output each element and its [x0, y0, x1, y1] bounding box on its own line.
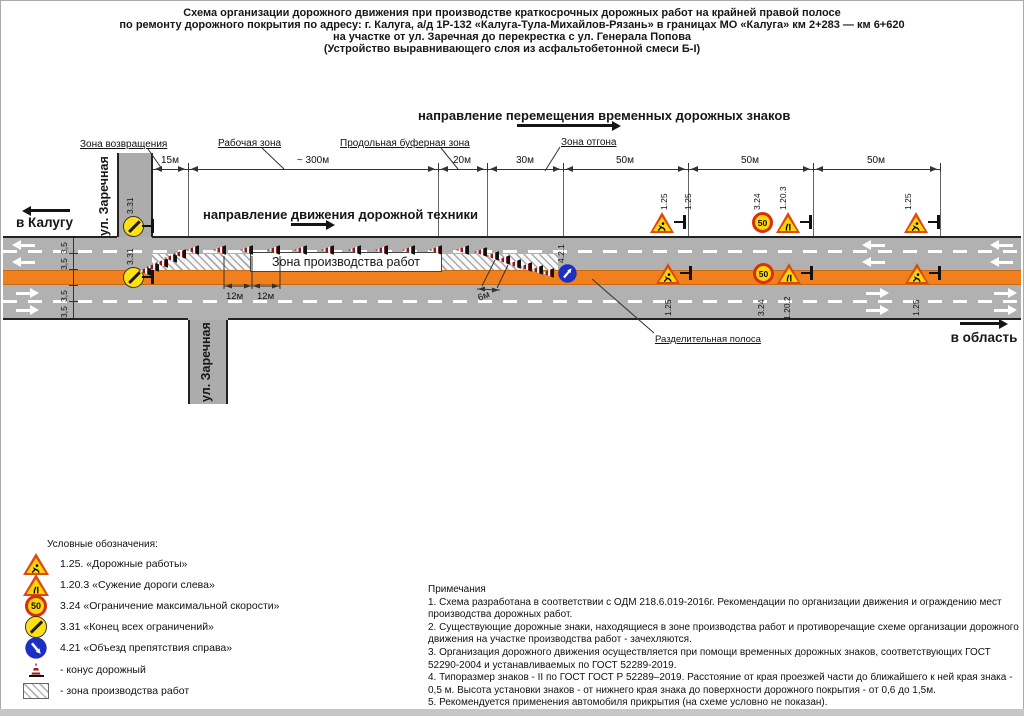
note-item: 2. Существующие дорожные знаки, находящи…: [428, 622, 1022, 647]
end-restrictions-sign-icon: [123, 216, 144, 237]
lane-direction-arrow-icon: [16, 309, 35, 312]
lane-direction-arrow-icon: [994, 309, 1013, 312]
end-restrictions-sign-icon: [20, 616, 52, 638]
to-oblast-arrow-icon: [960, 322, 1004, 325]
lane-direction-arrow-icon: [994, 261, 1013, 264]
road-edge: [3, 318, 188, 320]
buffer-zone-label: Продольная буферная зона: [340, 138, 470, 149]
legend-item: - зона производства работ: [20, 681, 189, 701]
legend-item-label: - зона производства работ: [60, 685, 189, 697]
work-zone-hatch-icon: [20, 683, 52, 699]
legend-item-label: 3.31 «Конец всех ограничений»: [60, 621, 214, 633]
sign-code-label: 3.24: [752, 184, 762, 210]
guide-line: [940, 172, 941, 237]
to-kaluga-label: в Калугу: [16, 215, 73, 230]
street-bottom-label: ул. Заречная: [199, 326, 213, 402]
sign-post-icon: [929, 266, 941, 280]
screenshot-bottom-edge: [0, 709, 1024, 716]
return-zone-label: Зона возвращения: [80, 139, 167, 150]
dim-label: 50м: [867, 155, 885, 166]
taper-zone-label: Зона отгона: [561, 137, 616, 148]
page-title-line2: по ремонту дорожного покрытия по адресу:…: [0, 19, 1024, 31]
lane-divider-dashed: [3, 250, 1021, 253]
sign-code-label: 3.31: [125, 190, 135, 214]
notes-header: Примечания: [428, 584, 1022, 597]
guide-line: [438, 172, 439, 237]
lane-dim-tick: [69, 253, 78, 254]
sign-code-label: 1.25: [659, 184, 669, 210]
detour-right-sign-icon: [20, 637, 52, 659]
to-kaluga-arrow-icon: [26, 209, 70, 212]
cone-spacing-label: 12м: [257, 291, 274, 302]
road-edge: [228, 318, 1021, 320]
detour-right-sign-icon: [558, 264, 577, 283]
cone-spacing-label: 12м: [226, 291, 243, 302]
legend-item: 50 3.24 «Ограничение максимальной скорос…: [20, 596, 279, 616]
lane-direction-arrow-icon: [866, 261, 885, 264]
sign-post-icon: [680, 266, 692, 280]
lane-dim-tick: [69, 285, 78, 286]
to-oblast-label: в область: [948, 330, 1020, 345]
note-item: 4. Типоразмер знаков - II по ГОСТ ГОСТ Р…: [428, 672, 1022, 697]
sign-code-label: 1.20.2: [782, 290, 792, 320]
dim-label: ~ 300м: [297, 155, 329, 166]
dim-segment: [152, 169, 188, 170]
legend-item: 1.25. «Дорожные работы»: [20, 554, 187, 574]
speed-limit-sign-icon: 50: [752, 212, 773, 233]
sign-code-label: 1.25: [903, 184, 913, 210]
dim-segment: [688, 169, 813, 170]
sign-post-icon: [674, 215, 686, 229]
dim-label: 15м: [161, 155, 179, 166]
sign-post-icon: [928, 215, 940, 229]
page-title-line3: на участке от ул. Заречная до перекрестк…: [0, 31, 1024, 43]
legend-item-label: - конус дорожный: [60, 664, 146, 676]
page-title-line4: (Устройство выравнивающего слоя из асфал…: [0, 43, 1024, 55]
road-edge: [3, 236, 117, 238]
sign-code-label: 3.31: [125, 241, 135, 265]
traffic-cone-icon: [20, 663, 52, 678]
machinery-direction-arrow-icon: [291, 223, 331, 226]
dim-segment: [188, 169, 438, 170]
traffic-scheme-sheet: Схема организации дорожного движения при…: [0, 0, 1024, 716]
lane-direction-arrow-icon: [994, 244, 1013, 247]
lane-direction-arrow-icon: [866, 244, 885, 247]
sign-code-label: 1.25: [663, 290, 673, 316]
lane-width-label: 3,5: [59, 304, 69, 318]
sign-code-label: 1.25: [911, 290, 921, 316]
notes-block: Примечания 1. Схема разработана в соотве…: [428, 584, 1022, 716]
sign-code-label: 4.2.1: [556, 238, 566, 263]
speed-limit-sign-icon: 50: [753, 263, 774, 284]
roadworks-sign-icon: [20, 553, 52, 575]
dim-segment: [438, 169, 487, 170]
sign-post-icon: [800, 215, 812, 229]
lane-direction-arrow-icon: [866, 309, 885, 312]
sign-post-icon: [801, 266, 813, 280]
speed-limit-sign-icon: 50: [20, 595, 52, 617]
road-edge: [152, 236, 1021, 238]
lane-direction-arrow-icon: [866, 292, 885, 295]
narrowing-left-sign-icon: [776, 212, 800, 233]
guide-line: [188, 172, 189, 237]
lane-width-label: 3,5: [59, 240, 69, 254]
legend-item-label: 4.21 «Объезд препятствия справа»: [60, 642, 232, 654]
dim-label: 50м: [741, 155, 759, 166]
lane-direction-arrow-icon: [16, 292, 35, 295]
speed-value: 50: [758, 218, 767, 228]
dividing-strip-label: Разделительная полоса: [655, 334, 761, 345]
roadworks-sign-icon: [904, 212, 928, 233]
page-title-line1: Схема организации дорожного движения при…: [0, 7, 1024, 19]
lane-divider-dashed: [3, 300, 1021, 303]
dim-segment: [813, 169, 940, 170]
lane-dim-line: [73, 238, 74, 318]
dividing-strip: [3, 270, 1021, 285]
sign-code-label: 3.24: [756, 290, 766, 316]
roadworks-sign-icon: [650, 212, 674, 233]
legend-item: 3.31 «Конец всех ограничений»: [20, 617, 214, 637]
legend-item: 4.21 «Объезд препятствия справа»: [20, 638, 232, 658]
work-zone-label-box: Зона производства работ: [250, 252, 442, 272]
lane-direction-arrow-icon: [16, 261, 35, 264]
legend-item-label: 1.25. «Дорожные работы»: [60, 558, 187, 570]
dim-label: 50м: [616, 155, 634, 166]
speed-value: 50: [31, 601, 41, 611]
legend-item: 1.20.3 «Сужение дороги слева»: [20, 575, 215, 595]
machinery-direction-label: направление движения дорожной техники: [203, 207, 478, 222]
dim-label: 20м: [453, 155, 471, 166]
lane-dim-tick: [69, 269, 78, 270]
legend-item-label: 3.24 «Ограничение максимальной скорости»: [60, 600, 279, 612]
street-top-label: ул. Заречная: [97, 158, 111, 236]
lane-width-label: 3,5: [59, 288, 69, 302]
sign-code-label: 1.25: [683, 184, 693, 210]
working-zone-label: Рабочая зона: [218, 138, 281, 149]
dim-segment: [563, 169, 688, 170]
sign-post-icon: [142, 219, 154, 233]
lane-direction-arrow-icon: [16, 244, 35, 247]
note-item: 3. Организация дорожного движения осущес…: [428, 647, 1022, 672]
sign-code-label: 1.20.3: [778, 180, 788, 210]
legend-header: Условные обозначения:: [47, 539, 158, 550]
dim-segment: [487, 169, 563, 170]
lane-dim-tick: [69, 301, 78, 302]
narrowing-left-sign-icon: [20, 574, 52, 596]
legend-item: - конус дорожный: [20, 660, 146, 680]
guide-line: [813, 172, 814, 237]
lane-width-label: 3,5: [59, 256, 69, 270]
guide-line: [487, 172, 488, 237]
speed-value: 50: [759, 269, 768, 279]
note-item: 1. Схема разработана в соответствии с ОД…: [428, 597, 1022, 622]
lane-direction-arrow-icon: [994, 292, 1013, 295]
legend-item-label: 1.20.3 «Сужение дороги слева»: [60, 579, 215, 591]
guide-line: [563, 172, 564, 237]
signs-direction-arrow-icon: [517, 124, 617, 127]
dim-label: 30м: [516, 155, 534, 166]
signs-direction-label: направление перемещения временных дорожн…: [418, 108, 748, 123]
